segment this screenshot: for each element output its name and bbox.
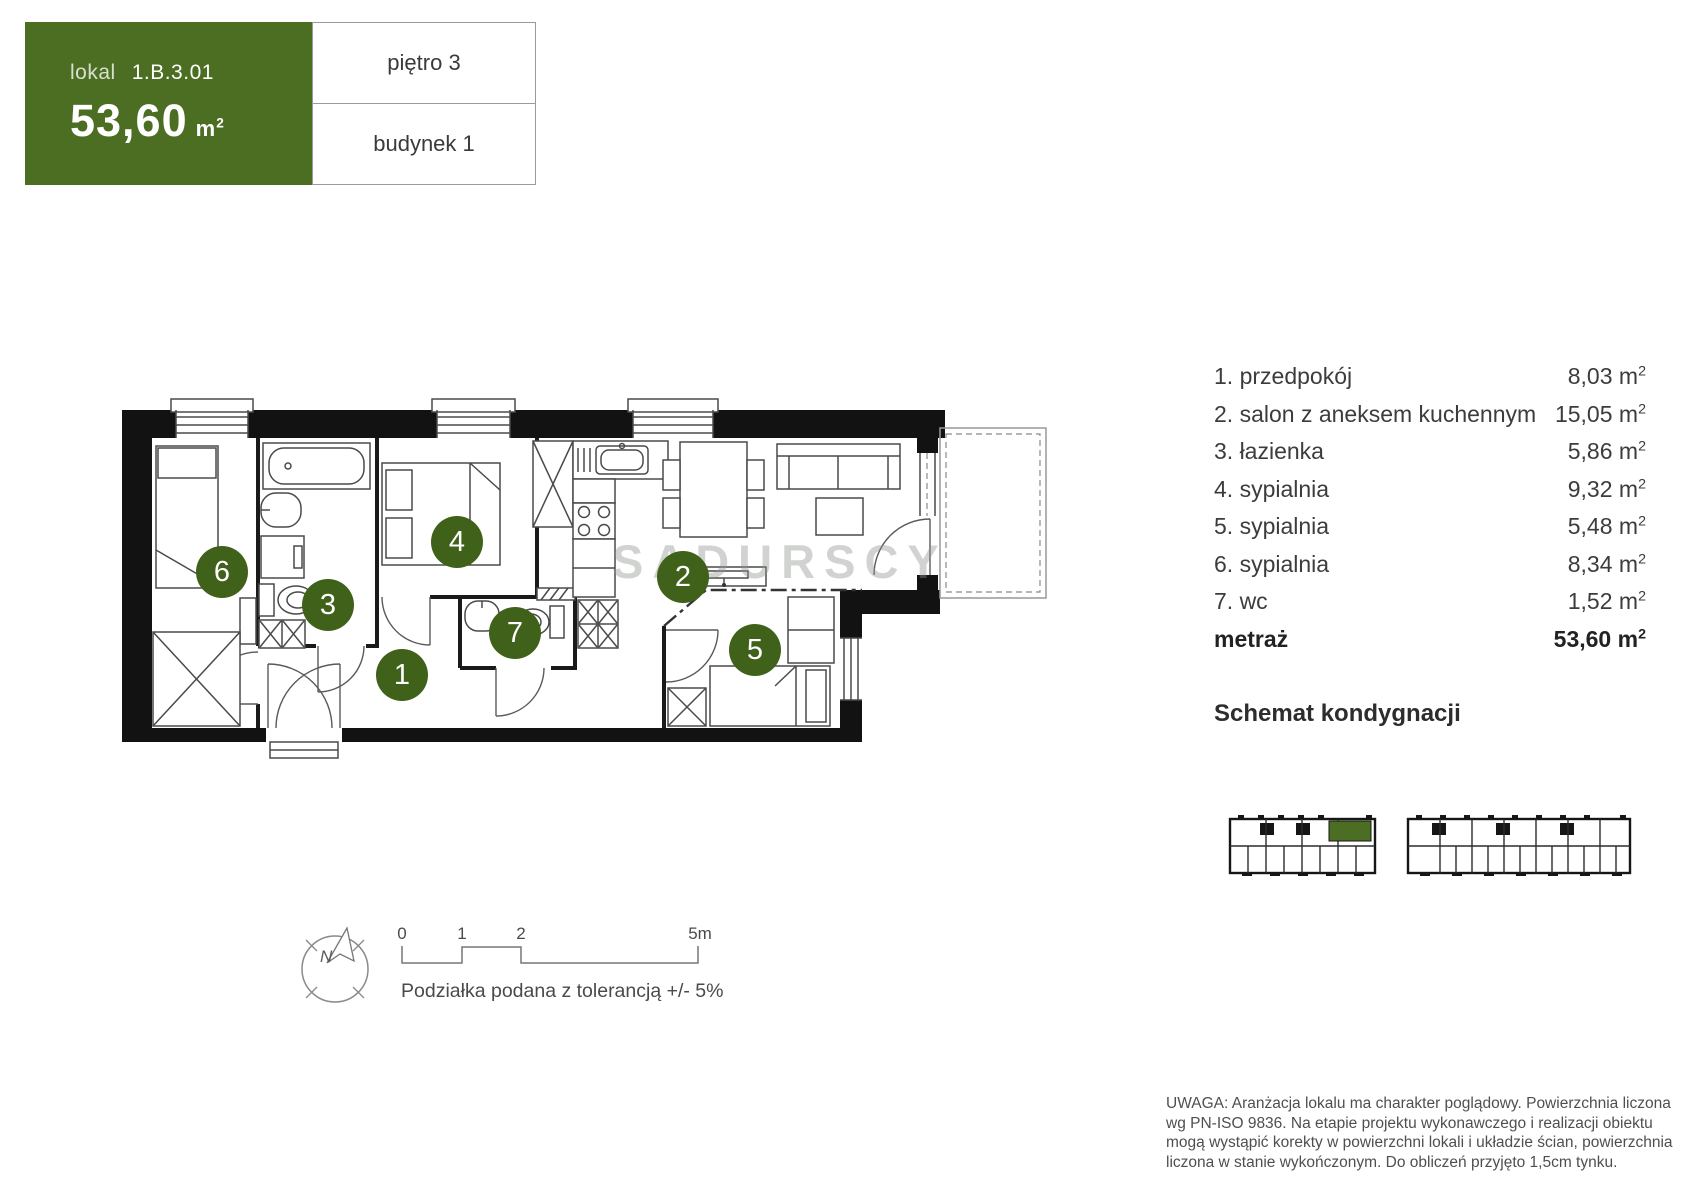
building-2-outline: [1408, 815, 1630, 876]
window-kitchen: [628, 399, 718, 438]
unit-sup: 2: [1638, 589, 1646, 605]
floor-schematic: [1225, 812, 1645, 878]
scale-tick-2: 2: [516, 924, 525, 944]
room-row-5: 5. sypialnia 5,48 m2: [1214, 508, 1646, 546]
room-label: 4. sypialnia: [1214, 476, 1329, 503]
scale-tick-0: 0: [397, 924, 406, 944]
unit-area-value: 53,60: [70, 95, 188, 146]
unit: m: [1619, 551, 1638, 577]
disclaimer-line-4: liczona w stanie wykończonym. Do oblicze…: [1166, 1153, 1691, 1173]
unit-id-line: lokal1.B.3.01: [70, 61, 312, 85]
room-area: 15,05: [1555, 401, 1613, 427]
room-area: 8,03: [1568, 363, 1613, 389]
unit-sup: 2: [1638, 514, 1646, 530]
room-area: 5,86: [1568, 438, 1613, 464]
room-circle-7: 7: [489, 607, 541, 659]
building-1-outline: [1230, 815, 1375, 876]
unit-area: 53,60m2: [70, 95, 312, 147]
room-area: 5,48: [1568, 513, 1613, 539]
room-circle-2: 2: [657, 551, 709, 603]
scale-bar: [402, 946, 698, 963]
scale-tick-5m: 5m: [688, 924, 712, 944]
room-row-1: 1. przedpokój 8,03 m2: [1214, 358, 1646, 396]
room-label: 5. sypialnia: [1214, 513, 1329, 540]
scale-tick-1: 1: [457, 924, 466, 944]
floor-cell: piętro 3: [313, 23, 535, 103]
scale-caption: Podziałka podana z tolerancją +/- 5%: [401, 980, 724, 1003]
room-area: 8,34: [1568, 551, 1613, 577]
unit-sup: 2: [1638, 551, 1646, 567]
total-label: metraż: [1214, 626, 1288, 653]
room-label: 2. salon z aneksem kuchennym: [1214, 401, 1536, 428]
total-row: metraż 53,60 m2: [1214, 621, 1646, 659]
unit-sup: 2: [1638, 439, 1646, 455]
unit-sup: 2: [1638, 364, 1646, 380]
room-row-2: 2. salon z aneksem kuchennym 15,05 m2: [1214, 396, 1646, 434]
highlighted-unit: [1329, 821, 1371, 841]
room-label: 6. sypialnia: [1214, 551, 1329, 578]
room-label: 7. wc: [1214, 588, 1268, 615]
room-area: 9,32: [1568, 476, 1613, 502]
window-room4: [432, 399, 515, 438]
unit-header-card: lokal1.B.3.01 53,60m2: [25, 22, 312, 185]
floor-building-table: piętro 3 budynek 1: [312, 22, 536, 185]
north-label: N: [320, 947, 332, 967]
lokal-number: 1.B.3.01: [132, 61, 214, 84]
unit: m: [1619, 588, 1638, 614]
room-area: 1,52: [1568, 588, 1613, 614]
unit-sup: 2: [1638, 626, 1646, 642]
room-row-4: 4. sypialnia 9,32 m2: [1214, 471, 1646, 509]
schemat-title: Schemat kondygnacji: [1214, 700, 1461, 728]
unit: m: [1619, 363, 1638, 389]
room-circle-5: 5: [729, 624, 781, 676]
entrance-door: [266, 664, 342, 758]
room-circle-4: 4: [431, 516, 483, 568]
room-row-6: 6. sypialnia 8,34 m2: [1214, 546, 1646, 584]
building-cell: budynek 1: [313, 103, 535, 184]
unit-sup: 2: [1638, 401, 1646, 417]
disclaimer-line-3: mogą wystąpić korekty w powierzchni loka…: [1166, 1133, 1691, 1153]
room-row-7: 7. wc 1,52 m2: [1214, 583, 1646, 621]
unit: m: [1619, 476, 1638, 502]
room-row-3: 3. łazienka 5,86 m2: [1214, 433, 1646, 471]
unit-area-sup: 2: [216, 115, 225, 130]
disclaimer-note: UWAGA: Aranżacja lokalu ma charakter pog…: [1166, 1094, 1691, 1172]
unit: m: [1619, 513, 1638, 539]
room-circle-6: 6: [196, 546, 248, 598]
north-compass-icon: [302, 928, 368, 1002]
room-circle-3: 3: [302, 579, 354, 631]
room-label: 1. przedpokój: [1214, 363, 1352, 390]
total-area: 53,60: [1554, 626, 1612, 652]
window-room5: [840, 638, 862, 700]
room-list: 1. przedpokój 8,03 m2 2. salon z aneksem…: [1214, 358, 1646, 658]
unit: m: [1619, 401, 1638, 427]
lokal-label: lokal: [70, 61, 116, 84]
balcony: [940, 428, 1046, 598]
unit: m: [1618, 626, 1638, 652]
window-room6: [171, 399, 253, 438]
unit-area-unit: m: [196, 116, 217, 141]
room-circle-1: 1: [376, 649, 428, 701]
disclaimer-line-1: UWAGA: Aranżacja lokalu ma charakter pog…: [1166, 1094, 1691, 1114]
unit-sup: 2: [1638, 476, 1646, 492]
unit: m: [1619, 438, 1638, 464]
disclaimer-line-2: wg PN-ISO 9836. Na etapie projektu wykon…: [1166, 1114, 1691, 1134]
room-label: 3. łazienka: [1214, 438, 1324, 465]
